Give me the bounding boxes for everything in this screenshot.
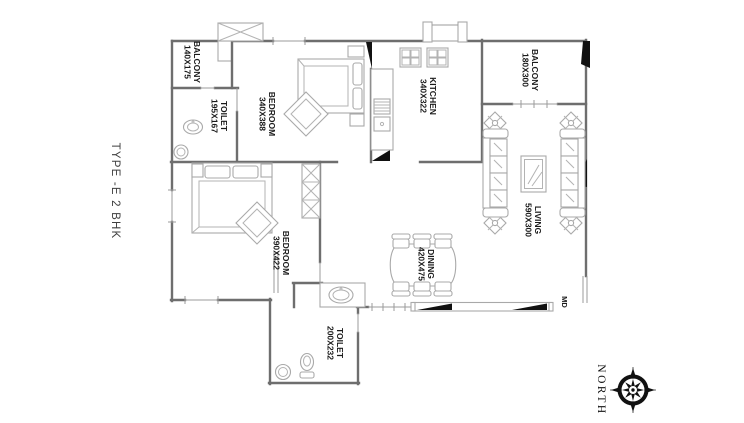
duct-icon (423, 22, 467, 42)
floor-plan: BALCONY140X175 TOILET195X167 BEDROOM340X… (0, 0, 744, 423)
door-leaf-icon (372, 150, 390, 161)
chair-icon (392, 282, 410, 296)
floor-plan-drawing: BALCONY140X175 TOILET195X167 BEDROOM340X… (0, 0, 744, 423)
room-label-balcony-2: BALCONY180X300 (521, 49, 541, 91)
sink-icon (184, 120, 203, 134)
sofa-icon (483, 129, 508, 217)
room-label-dining: DINING420X475 (417, 247, 437, 281)
room-label-toilet-1: TOILET195X167 (210, 99, 230, 133)
compass: NORTH (595, 364, 656, 415)
chair-icon (413, 282, 431, 296)
vanity-counter (320, 283, 365, 307)
sink-icon (374, 117, 390, 131)
chair-icon (413, 234, 431, 248)
sofa-icon (560, 129, 585, 217)
wardrobe-icon (302, 164, 320, 218)
wash-basin-icon (276, 365, 291, 380)
room-label-bedroom-1: BEDROOM340X388 (258, 92, 278, 136)
door-leaf-icon (366, 42, 372, 69)
stove-icon (400, 48, 421, 67)
chair-icon (392, 234, 410, 248)
coffee-table-icon (521, 156, 546, 192)
stove-icon (427, 48, 448, 67)
main-door-label: MD (560, 296, 569, 308)
room-label-balcony-1: BALCONY140X175 (183, 41, 203, 83)
shaft-icon (218, 23, 263, 41)
room-label-kitchen: KITCHEN340X322 (419, 77, 439, 115)
room-label-toilet-2: TOILET200X232 (326, 326, 346, 360)
kitchen-counter (371, 69, 393, 150)
chair-icon (434, 234, 452, 248)
chair-icon (434, 282, 452, 296)
wc-icon (300, 354, 314, 379)
wash-basin-icon (174, 145, 188, 159)
door-leaf-icon (581, 41, 590, 68)
room-label-living: LIVING590X300 (524, 203, 544, 237)
north-label: NORTH (595, 364, 607, 415)
compass-rose-icon (610, 367, 656, 413)
plan-title: TYPE -E 2 BHK (109, 143, 121, 240)
room-label-bedroom-2: BEDROOM390X422 (272, 231, 292, 275)
main-door (411, 303, 553, 312)
